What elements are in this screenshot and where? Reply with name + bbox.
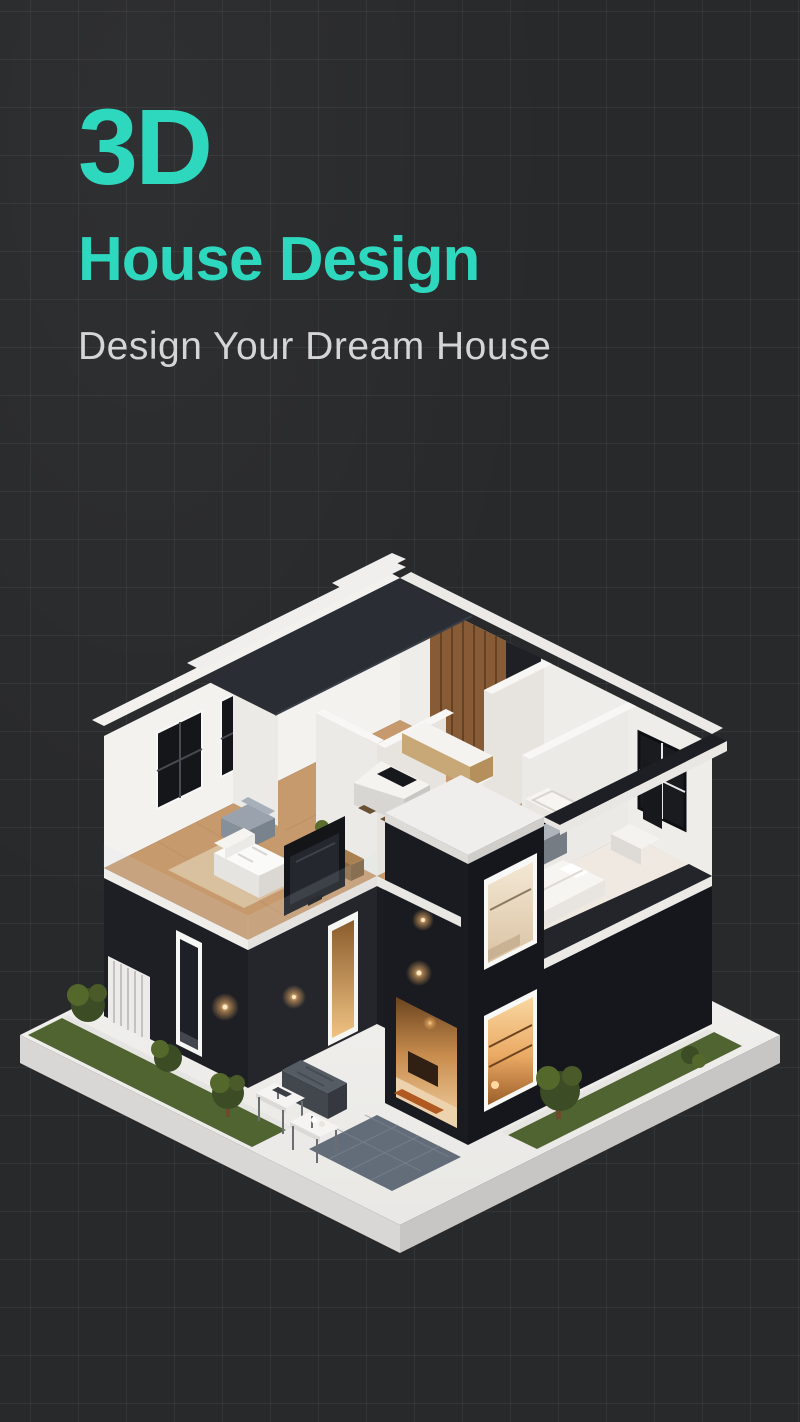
hero-text-block: 3D House Design Design Your Dream House bbox=[78, 96, 551, 366]
entry-door-window bbox=[176, 930, 202, 1057]
page-tagline: Design Your Dream House bbox=[78, 327, 551, 366]
page-title: 3D bbox=[78, 96, 551, 199]
patio-doorway bbox=[328, 911, 358, 1046]
facade-right-wing bbox=[468, 817, 544, 1145]
page-title-line2: House Design bbox=[78, 229, 551, 291]
house-scene bbox=[20, 553, 780, 1253]
